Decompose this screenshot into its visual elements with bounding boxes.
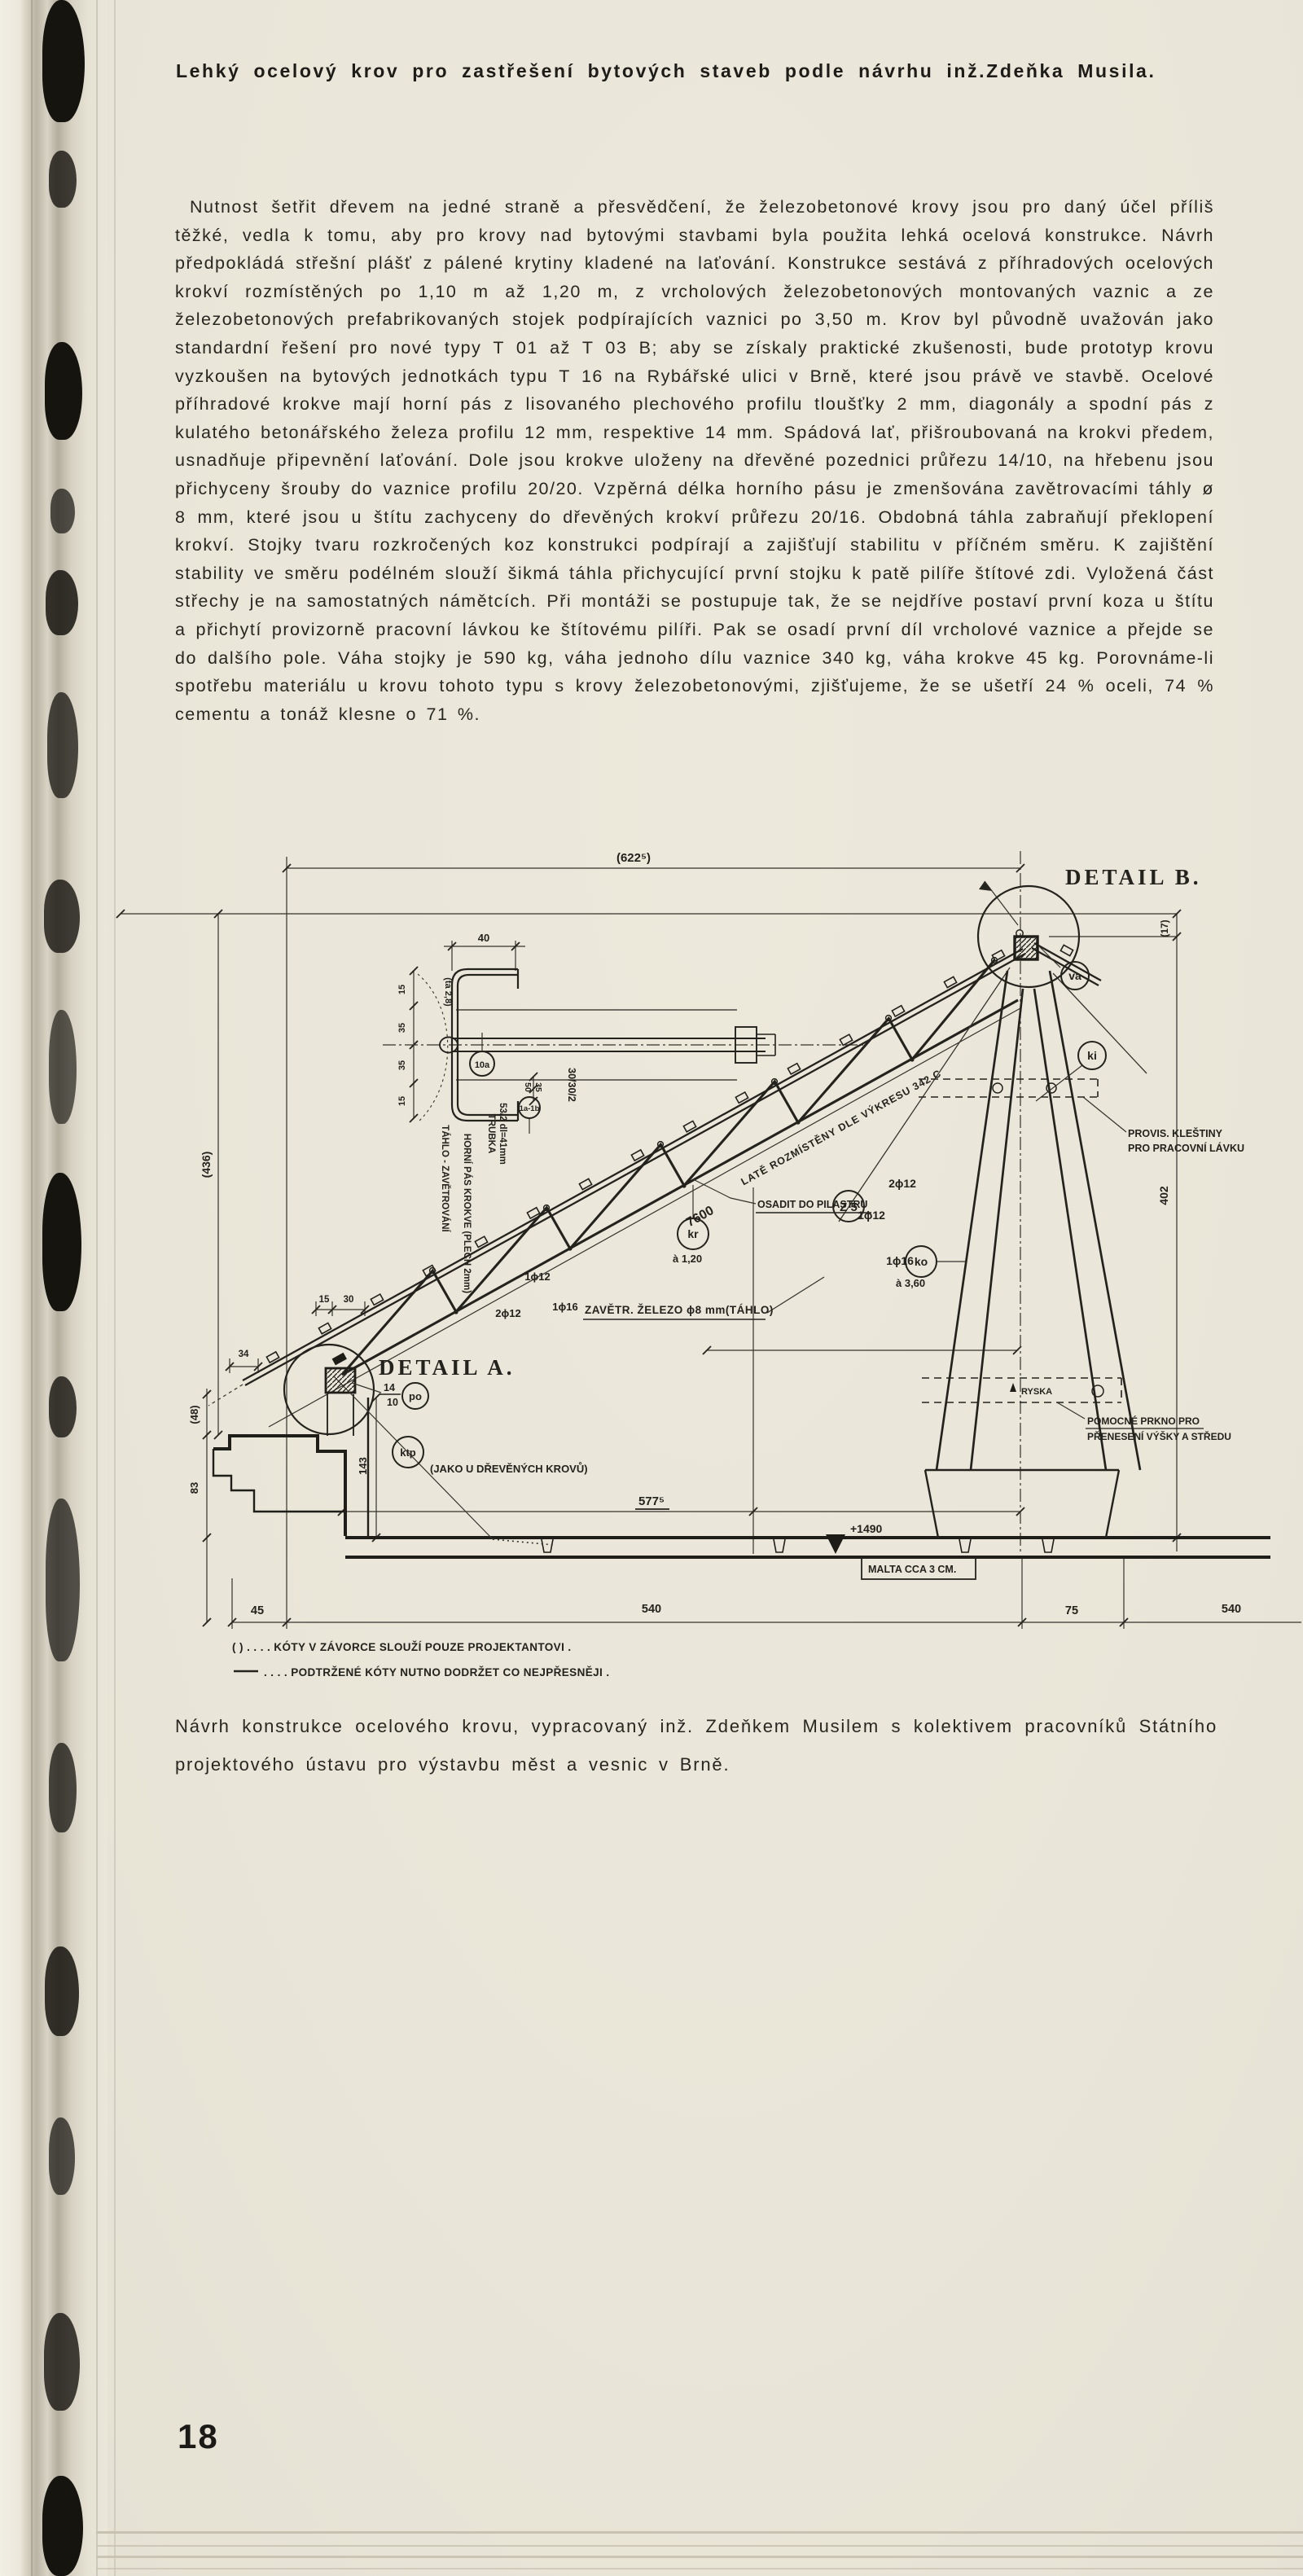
klestiny-bolts xyxy=(993,1083,1056,1093)
ink-blot xyxy=(49,151,77,208)
label-3030: 30/30/2 xyxy=(566,1068,577,1102)
ink-blot xyxy=(42,2476,83,2576)
page-stack-edge xyxy=(96,2545,1303,2547)
dim-143: 143 xyxy=(357,1457,369,1475)
dim-e30: 30 xyxy=(344,1295,354,1305)
label-ryska: RYSKA xyxy=(1021,1387,1052,1397)
label-jako: (JAKO U DŘEVĚNÝCH KROVŮ) xyxy=(430,1462,588,1475)
dim-elev: +1490 xyxy=(850,1522,883,1535)
dim-15a: 15 xyxy=(397,985,407,994)
page-number: 18 xyxy=(178,2417,219,2456)
ink-blot xyxy=(49,1743,77,1832)
ryska-mark xyxy=(1010,1383,1016,1392)
dim-7600: 7600 xyxy=(684,1204,716,1230)
label-pomocne2: PŘENESENÍ VÝŠKY A STŘEDU xyxy=(1087,1430,1231,1442)
label-tahlo: TÁHLO - ZAVĚTROVÁNÍ xyxy=(440,1125,450,1232)
dim-poz-top: 14 xyxy=(384,1382,395,1393)
rod-l3: 1ϕ16 xyxy=(552,1301,577,1313)
dim-83: 83 xyxy=(188,1482,200,1494)
footing xyxy=(925,1470,1119,1538)
balloon-1a1b: 1a-1b xyxy=(520,1104,540,1113)
label-malta: MALTA CCA 3 CM. xyxy=(868,1564,956,1575)
centre-axes xyxy=(383,851,1020,1554)
rod-u2: 1ϕ12 xyxy=(858,1209,885,1222)
label-trubka1: TRUBKA xyxy=(486,1114,496,1154)
dim-35c: 35 xyxy=(533,1082,543,1092)
balloon-po: po xyxy=(409,1390,422,1402)
dim-35b: 35 xyxy=(397,1060,407,1070)
leader-arrowhead xyxy=(979,881,992,891)
balloon-ki: ki xyxy=(1087,1049,1097,1062)
label-osadit: OSADIT DO PILASTRU xyxy=(757,1199,867,1210)
balloon-ko: ko xyxy=(915,1255,928,1268)
rod-l2: 2ϕ12 xyxy=(495,1307,520,1319)
scanned-page: Lehký ocelový krov pro zastřešení bytový… xyxy=(0,0,1303,2576)
page-stack-edge xyxy=(96,2556,1303,2558)
spacing-360: à 3,60 xyxy=(896,1277,925,1289)
ink-blot xyxy=(45,1946,79,2036)
pozednice-section xyxy=(326,1368,355,1393)
technical-drawing: va ki kr ko po ktp Z 5 10a 1a-1b DETAIL … xyxy=(0,847,1303,1690)
dim-poz-bot: 10 xyxy=(387,1397,398,1408)
dim-b75: 75 xyxy=(1065,1604,1078,1617)
page-stack-edge xyxy=(96,2568,1303,2569)
dim-35a: 35 xyxy=(397,1023,407,1033)
dim-b540a: 540 xyxy=(642,1603,661,1616)
detail-b-title: DETAIL B. xyxy=(1065,865,1202,889)
page-stack-edge xyxy=(96,2531,1303,2534)
dim-17: (17) xyxy=(1159,919,1170,937)
detail-a-title: DETAIL A. xyxy=(379,1355,515,1380)
spacing-120: à 1,20 xyxy=(673,1253,702,1265)
spadova-lat xyxy=(332,1353,347,1366)
dim-b540b: 540 xyxy=(1222,1603,1241,1616)
dim-e34: 34 xyxy=(239,1349,249,1359)
ink-blot xyxy=(50,489,75,533)
dim-span: (622⁵) xyxy=(616,851,651,865)
rod-u3: 1ϕ16 xyxy=(886,1254,914,1267)
label-zavetr: ZAVĚTR. ŽELEZO ϕ8 mm(TÁHLO) xyxy=(585,1304,774,1316)
dim-48: (48) xyxy=(188,1405,200,1424)
dim-5775: 577⁵ xyxy=(638,1494,665,1508)
ink-blot xyxy=(45,342,82,440)
figure-caption: Návrh konstrukce ocelového krovu, vyprac… xyxy=(175,1707,1217,1784)
label-trubka2: 53/2 dl=41mm xyxy=(498,1103,507,1165)
vaznice-section xyxy=(1015,937,1038,959)
dim-b45: 45 xyxy=(251,1604,264,1617)
balloon-va: va xyxy=(1068,969,1081,982)
eave-tip-dashed xyxy=(208,1385,243,1406)
dim-40: 40 xyxy=(478,932,489,944)
article-paragraph: Nutnost šetřit dřevem na jedné straně a … xyxy=(175,193,1214,728)
ink-blot xyxy=(47,692,78,798)
ink-blot xyxy=(44,2313,80,2411)
rod-u1: 2ϕ12 xyxy=(888,1177,916,1190)
label-horni-pas: HORNÍ PÁS KROKVE (PLECH 2mm) xyxy=(462,1134,472,1293)
label-provis1: PROVIS. KLEŠTINY xyxy=(1128,1127,1223,1139)
dim-436: (436) xyxy=(200,1152,213,1178)
floor-slab xyxy=(345,1538,1270,1557)
note-underlined: . . . . PODTRŽENÉ KÓTY NUTNO DODRŽET CO … xyxy=(264,1666,610,1679)
label-late: LATĚ ROZMÍSTĚNY DLE VÝKRESU 342 C xyxy=(739,1067,943,1187)
balloon-ktp: ktp xyxy=(400,1446,416,1459)
dim-50: 50 xyxy=(523,1082,533,1092)
dim-15b: 15 xyxy=(397,1096,407,1106)
balloon-kr: kr xyxy=(687,1227,699,1240)
dim-402: 402 xyxy=(1157,1186,1170,1205)
dim-e15: 15 xyxy=(319,1295,330,1305)
ink-blot xyxy=(42,0,85,122)
note-brackets: ( ) . . . . KÓTY V ZÁVORCE SLOUŽÍ POUZE … xyxy=(232,1641,572,1653)
label-provis2: PRO PRACOVNÍ LÁVKU xyxy=(1128,1142,1244,1154)
ink-blot xyxy=(49,2117,75,2195)
ink-blot xyxy=(46,570,78,635)
balloon-10a: 10a xyxy=(475,1060,490,1070)
article-title: Lehký ocelový krov pro zastřešení bytový… xyxy=(176,60,1226,82)
dimension-lines xyxy=(121,857,1301,1629)
roof-truss-drawing: va ki kr ko po ktp Z 5 10a 1a-1b DETAIL … xyxy=(0,847,1303,1690)
dim-ta28: (ta 2,8) xyxy=(443,977,453,1007)
rod-l1: 1ϕ12 xyxy=(524,1270,550,1283)
label-pomocne1: POMOCNÉ PRKNO PRO xyxy=(1087,1415,1200,1427)
wall-section xyxy=(213,1394,368,1536)
elevation-mark xyxy=(826,1534,845,1554)
